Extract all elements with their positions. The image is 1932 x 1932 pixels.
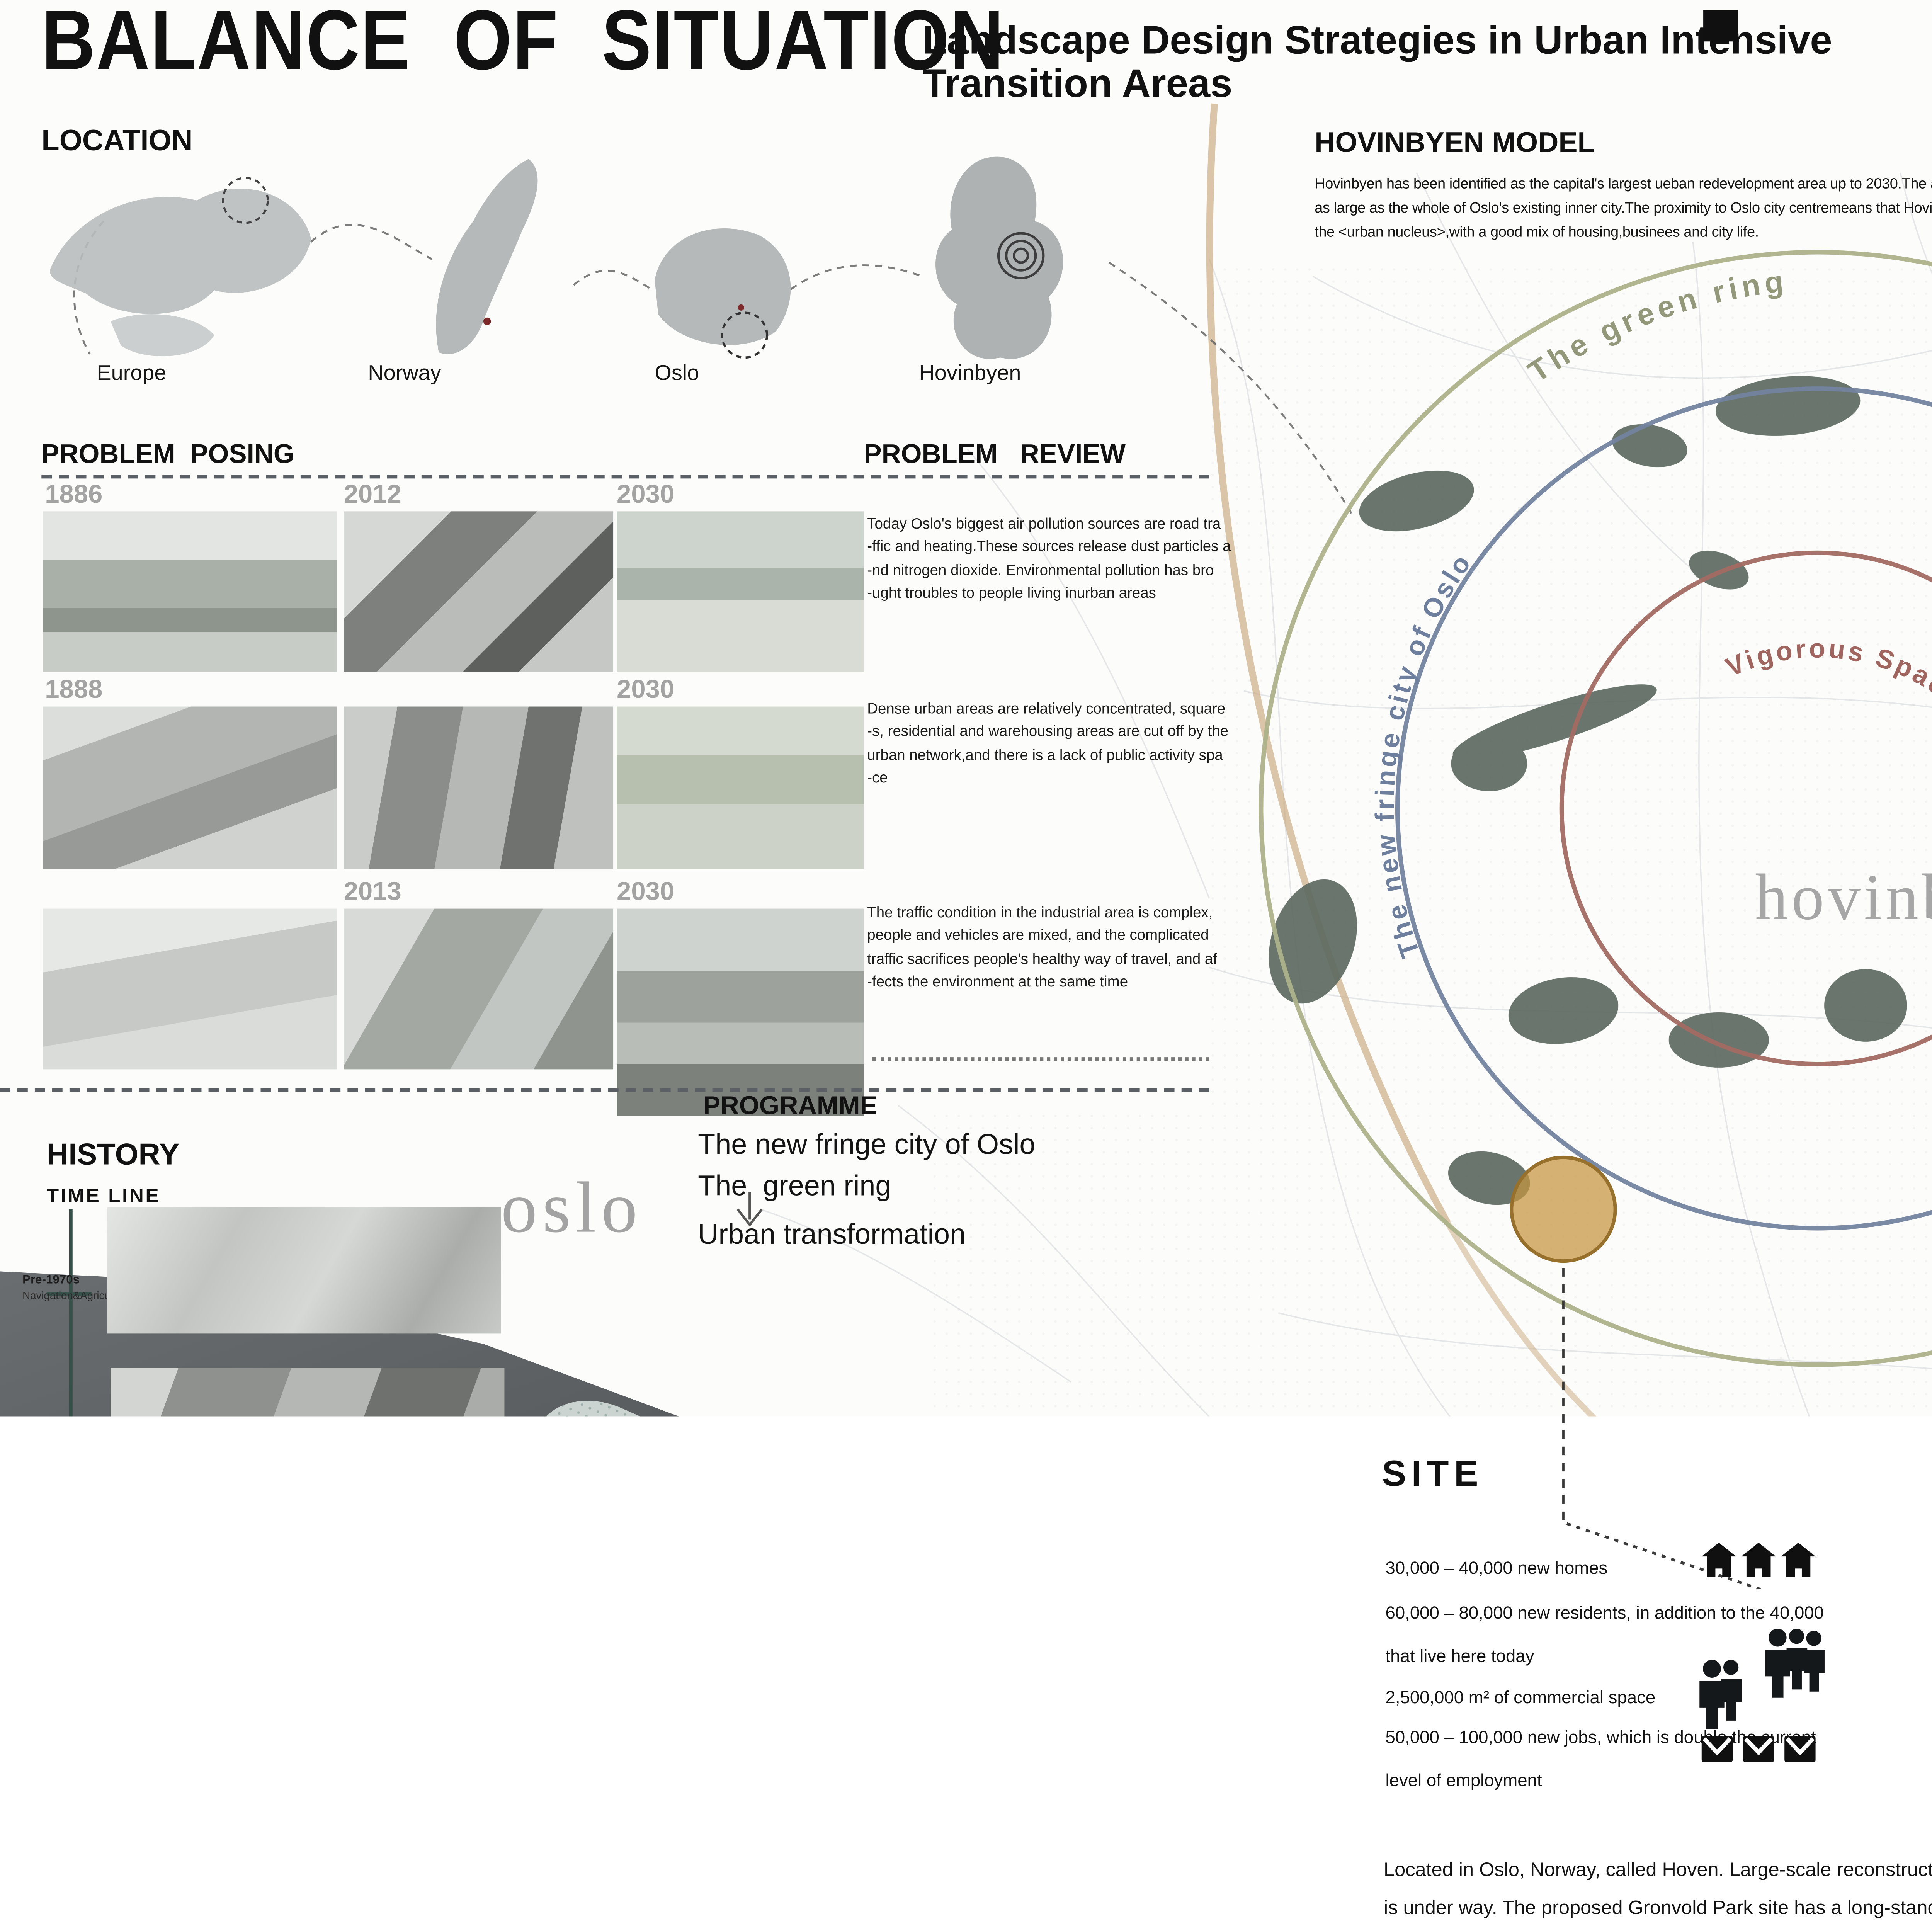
site-marker: [1512, 1157, 1615, 1261]
population-chart-y-axis: 765432: [470, 1772, 475, 1909]
year-1886: 1886: [45, 480, 102, 510]
population-y-tick: 3: [467, 1876, 478, 1881]
population-bar: [515, 1924, 528, 1932]
year-2030-r1: 2030: [617, 480, 674, 510]
photo-2013: [344, 909, 613, 1070]
norway-map-silhouette: [436, 159, 537, 354]
population-y-tick: 7: [467, 1775, 478, 1780]
section-history-heading: HISTORY: [47, 1137, 179, 1173]
oslo-watermark: oslo: [501, 1168, 643, 1251]
fringe-city-circle: [1398, 389, 1932, 1228]
programme-item2: The green ring: [698, 1171, 891, 1204]
problem-review-paragraph1: Today Oslo's biggest air pollution sourc…: [867, 513, 1230, 605]
section-problem-posing-heading: PROBLEM POSING: [41, 440, 294, 471]
year-2012: 2012: [344, 480, 401, 510]
pr1-line1: Today Oslo's biggest air pollution sourc…: [867, 513, 1230, 536]
site-stat-homes: 30,000 – 40,000 new homes: [1386, 1560, 1608, 1579]
legend-label-industrial: Industrail area: [1035, 1593, 1162, 1614]
legend-swatch-green-land: [968, 1496, 1026, 1546]
population-bar: [634, 1848, 647, 1932]
photo-2030-r2: [617, 707, 864, 869]
divider-dotted: [872, 1057, 1209, 1061]
envelopes-icon: [1702, 1736, 1816, 1770]
population-bar: [555, 1910, 568, 1932]
houses-icon: [1702, 1543, 1816, 1586]
population-bar: [536, 1917, 548, 1932]
site-stat-jobs2: level of employment: [1386, 1772, 1542, 1791]
photo-2030-r1: [617, 511, 864, 672]
logo-square: [1703, 10, 1738, 41]
programme-item1: The new fringe city of Oslo: [698, 1130, 1035, 1163]
pr3-line4: -fects the environment at the same time: [867, 971, 1230, 993]
legend-label-green-land: Green land area: [1035, 1510, 1176, 1531]
section-programme-heading: PROGRAMME: [703, 1092, 878, 1121]
timeline-label: TIME LINE: [47, 1187, 161, 1207]
pr2-line3: urban network,and there is a lack of pub…: [867, 744, 1230, 767]
harbor-pier: [570, 1679, 639, 1709]
hovinbyen-model-line2: as large as the whole of Oslo's existing…: [1315, 197, 1932, 221]
divider-problem-bottom: [0, 1088, 1209, 1092]
hovinbyen-model-line1: Hovinbyen has been identified as the cap…: [1315, 173, 1932, 197]
pr1-line3: -nd nitrogen dioxide. Environmental poll…: [867, 559, 1230, 582]
site-desc-line2: is under way. The proposed Gronvold Park…: [1384, 1890, 1932, 1929]
timeline-tick: [47, 1472, 92, 1475]
population-y-tick: 5: [467, 1825, 478, 1830]
legend-swatch-river: [968, 1745, 1026, 1795]
pr3-line3: traffic sacrifices people's healthy way …: [867, 948, 1230, 971]
site-description: Located in Oslo, Norway, called Hoven. L…: [1384, 1852, 1932, 1932]
pr2-line2: -s, residential and warehousing areas ar…: [867, 721, 1230, 744]
pr2-line4: -ce: [867, 767, 1230, 790]
problem-review-paragraph3: The traffic condition in the industrial …: [867, 902, 1230, 994]
legend-swatch-urban-fringe: [968, 1828, 1026, 1878]
site-stat-commercial: 2,500,000 m² of commercial space: [1386, 1689, 1656, 1708]
location-label-oslo: Oslo: [655, 361, 699, 385]
photo-1886: [43, 511, 337, 672]
population-chart-axis-line: [487, 1765, 489, 1932]
location-label-hovinbyen: Hovinbyen: [919, 361, 1021, 385]
section-problem-review-heading: PROBLEM REVIEW: [864, 440, 1126, 471]
immigrant-pct-label: 29.6%: [102, 1843, 166, 1869]
population-bar: [714, 1796, 727, 1932]
legend-label-river: River: [1035, 1759, 1082, 1779]
legend-label-urban-fringe: Urban fringe: [1035, 1842, 1146, 1862]
figure-ground-layer: [1168, 1783, 1496, 1852]
population-y-tick: 2: [467, 1901, 478, 1906]
population-bar: [595, 1867, 608, 1932]
year-2030-r2: 2030: [617, 675, 674, 705]
population-y-tick: 4: [467, 1851, 478, 1856]
photo-street-people: [344, 707, 613, 869]
pr1-line4: -ught troubles to people living inurban …: [867, 582, 1230, 605]
section-hovinbyen-model-heading: HOVINBYEN MODEL: [1315, 128, 1595, 161]
site-stat-residents2: that live here today: [1386, 1648, 1534, 1667]
residents-group-icon: [252, 1859, 342, 1931]
photo-2030-r3-cyclists: [617, 909, 864, 1116]
population-analysis-subheading: Population anaylsis: [95, 1643, 318, 1671]
year-2013: 2013: [344, 878, 401, 907]
location-label-norway: Norway: [368, 361, 441, 385]
population-bar: [655, 1839, 667, 1932]
site-desc-line3: farmhouse and small green space, which i…: [1384, 1929, 1932, 1932]
site-stat-residents: 60,000 – 80,000 new residents, in additi…: [1386, 1605, 1824, 1624]
timeline-photo-farming: [107, 1207, 501, 1333]
harbor-pier: [522, 1587, 566, 1626]
green-ring-label: The green ring: [1522, 264, 1789, 389]
poster-subtitle-line2: Transition Areas: [922, 60, 1232, 107]
site-desc-line1: Located in Oslo, Norway, called Hoven. L…: [1384, 1852, 1932, 1891]
photo-2012: [344, 511, 613, 672]
pr1-line2: -ffic and heating.These sources release …: [867, 536, 1230, 559]
legend-swatch-block-pits: [968, 1662, 1026, 1712]
pr3-line2: people and vehicles are mixed, and the c…: [867, 925, 1230, 947]
population-bar: [734, 1791, 747, 1932]
section-city-background-heading: CITY BACKGROUND: [57, 1586, 347, 1619]
programme-item3: Urban transformation: [698, 1219, 966, 1252]
poster-board: BALANCE OF SITUATION Landscape Design St…: [0, 0, 1932, 1932]
immigrant-person-icon: [143, 1760, 199, 1840]
population-bar: [674, 1825, 687, 1932]
poster-title: BALANCE OF SITUATION: [41, 0, 1004, 90]
population-chart-bars: 1800180118501890195119611971198119912001…: [496, 1772, 767, 1932]
population-y-tick: 6: [467, 1800, 478, 1805]
pr2-line1: Dense urban areas are relatively concent…: [867, 698, 1230, 721]
problem-review-paragraph2: Dense urban areas are relatively concent…: [867, 698, 1230, 790]
legend-label-block-pits: Block pits: [1035, 1676, 1124, 1697]
people-icon: [1684, 1627, 1833, 1731]
legend-swatch-industrial: [968, 1579, 1026, 1629]
photo-1888: [43, 707, 337, 869]
pr3-line1: The traffic condition in the industrial …: [867, 902, 1230, 925]
population-bar: [754, 1784, 767, 1932]
timeline-photo-oil-gas: [111, 1368, 504, 1527]
photo-landscape-r3: [43, 909, 337, 1070]
europe-map-silhouette: [50, 189, 311, 356]
population-bar: [575, 1879, 588, 1932]
population-bar: [694, 1808, 707, 1932]
population-bar: [615, 1858, 628, 1932]
location-label-europe: Europe: [97, 361, 166, 385]
section-site-heading: SITE: [1382, 1454, 1483, 1496]
year-1888: 1888: [45, 675, 102, 705]
location-maps: [41, 148, 1250, 390]
population-bar: [496, 1927, 509, 1932]
divider-problem-top: [41, 475, 1209, 478]
hovinbyen-center-label: hovinbyen: [1755, 860, 1932, 936]
year-2030-r3: 2030: [617, 878, 674, 907]
oslo-population-growth-chart: 765432 180018011850189019511961197119811…: [487, 1765, 798, 1932]
poster-subtitle-line1: Landscape Design Strategies in Urban Int…: [922, 17, 1832, 64]
local-pct-label: 70.4%: [150, 1895, 216, 1921]
